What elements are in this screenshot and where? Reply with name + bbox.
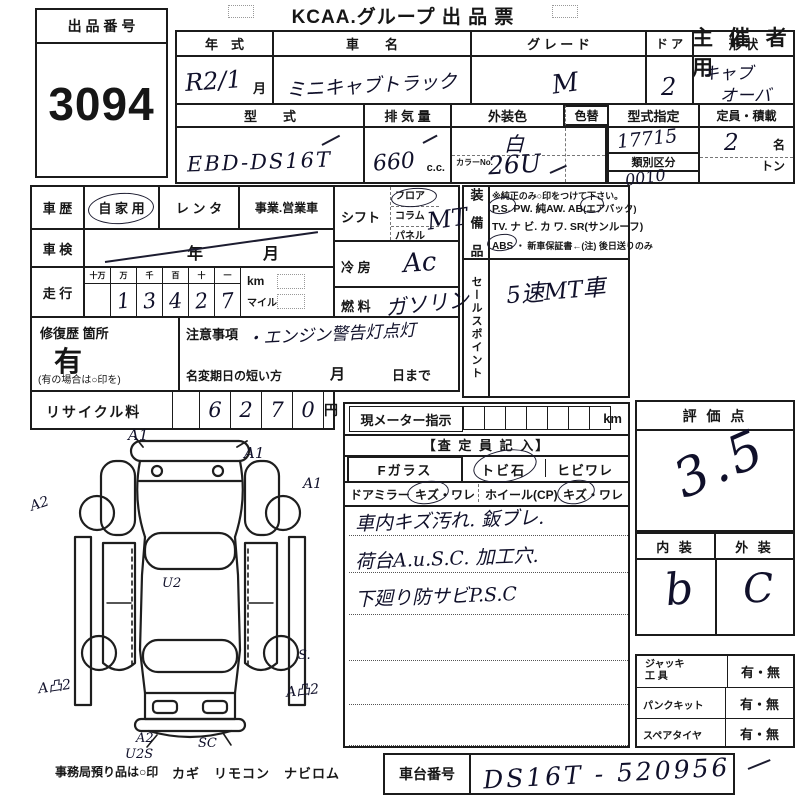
door-value: 2 [661, 73, 676, 101]
annotation-u2s-bottom: U2S [125, 747, 153, 762]
type-designation-header: 型式指定 [607, 103, 700, 128]
wheel-damage-label: キズ・ワレ [563, 486, 623, 503]
stone-chip-label: トビ石 [481, 460, 526, 479]
model-header: 型 式 [175, 103, 365, 128]
capacity-cell: 2 名 トン [698, 126, 795, 184]
equipment-label: 装 備 品 [464, 187, 490, 258]
auction-sheet: KCAA.グループ 出 品 票 主 催 者 用 出 品 番 号 3094 年 式… [0, 0, 800, 800]
mirror-wheel-row: ドアミラー キズ・ワレ ホイール(CP) キズ・ワレ [345, 481, 628, 507]
inspection-month-unit: 月 [263, 240, 279, 264]
equipment-aw: 純AW. [536, 203, 566, 215]
color-change-header: 色替 [565, 105, 607, 126]
digit-value: 3 [135, 283, 163, 318]
displacement-cell: 660 c.c. [363, 126, 452, 184]
annotation-a1-front-right: A1 [244, 444, 264, 462]
assessor-note-2: 荷台A.u.S.C. 加工穴. [355, 541, 539, 574]
digit-header: 千 [137, 268, 162, 284]
recycle-fee-box: リサイクル料 6 2 7 0 円 [30, 390, 335, 430]
shift-option-floor: フロア [391, 187, 439, 207]
name-header: 車 名 [272, 30, 472, 57]
equipment-pw: PW. [513, 203, 532, 215]
color-change-divider [565, 128, 566, 182]
class-value: 0010 [624, 165, 667, 189]
history-option-rental: レ ン タ [158, 185, 240, 230]
spare-tire-value: 有・無 [726, 719, 793, 748]
caution-label: 注意事項 [186, 324, 238, 343]
mileage-label: 走 行 [30, 266, 85, 318]
interior-exterior-box: 内 装 外 装 b C [635, 532, 795, 636]
model-cell: EBD-DS16T [175, 126, 365, 184]
exterior-label: 外 装 [716, 534, 793, 558]
recycle-unit: 円 [324, 392, 338, 428]
digit-header: 十万 [85, 268, 110, 284]
exhibit-number-box: 出 品 番 号 3094 [35, 8, 168, 178]
front-glass-label: Fガラス [347, 456, 463, 483]
digit-header: 万 [111, 268, 136, 284]
exhibit-number-label: 出 品 番 号 [37, 10, 166, 44]
recycle-digit: 6 [200, 392, 231, 428]
registration-mark-right [552, 5, 578, 18]
name-change-label: 名変期日の短い方 [186, 367, 282, 384]
sales-point-box: セールスポイント 5速MT車 [462, 258, 630, 398]
capacity-header: 定員・積載 [698, 103, 795, 128]
glass-row: Fガラス トビ石 ヒビワレ [345, 455, 628, 483]
office-custody-note: 事務局預り品は○印 [55, 763, 158, 780]
jack-label-line2: 工 具 [645, 671, 727, 683]
pen-check-model [322, 135, 341, 146]
recycle-digit: 0 [293, 392, 324, 428]
score-box: 評 価 点 3.5 [635, 400, 795, 532]
shape-cell: キャブ オーバ [692, 55, 795, 105]
vehicle-diagram [45, 425, 340, 760]
history-option-private: 自 家 用 [83, 185, 160, 230]
equipment-sr: SR(サンルーフ) [570, 221, 643, 233]
puncture-kit-value: 有・無 [726, 688, 793, 718]
capacity-value: 2 [724, 130, 739, 156]
annotation-u2-center: U2 [162, 576, 181, 591]
equipment-tv: TV. [492, 221, 507, 233]
annotation-sc-bottom: SC [198, 736, 217, 751]
equipment-line1: P.S. PW. 純AW. AB(エアバック) [492, 201, 637, 216]
shift-label: シフト [341, 207, 380, 226]
repair-note: (有の場合は○印を) [38, 371, 121, 386]
caution-box: 注意事項 ・エンジン警告灯点灯 名変期日の短い方 月 日まで [178, 316, 460, 392]
annotation-s-rear-right: S. [298, 648, 311, 663]
sales-point-label: セールスポイント [464, 260, 490, 396]
assessor-header: 【査 定 員 記 入】 [345, 434, 628, 457]
type-designation-cell: 17715 類別区分 0010 [607, 126, 700, 184]
interior-label: 内 装 [637, 534, 716, 558]
inspection-label: 車 検 [30, 228, 85, 268]
digit-value: 4 [161, 283, 189, 318]
mileage-grid: 十万 万 1 千 3 百 4 十 2 一 7 [85, 268, 241, 316]
assessor-box: 現メーター指示 km 【査 定 員 記 入】 Fガラス トビ石 ヒビワレ ドアミ… [343, 402, 630, 748]
puncture-kit-label: パンクキット [637, 688, 726, 718]
recycle-digit: 7 [262, 392, 293, 428]
name-change-until: 日まで [392, 365, 431, 384]
type-designation-value: 17715 [616, 125, 678, 153]
chassis-label: 車台番号 [385, 755, 471, 793]
recycle-label: リサイクル料 [46, 402, 141, 422]
model-value: EBD-DS16T [187, 147, 333, 176]
fuel-row: 燃 料 ガソリン [333, 286, 460, 318]
displacement-header: 排 気 量 [363, 103, 452, 128]
ext-color-header: 外装色 [450, 103, 565, 128]
chassis-number-box: 車台番号 DS16T - 520956 [383, 753, 735, 795]
jack-value: 有・無 [728, 656, 793, 687]
history-label: 車 歴 [30, 185, 85, 230]
name-cell: ミニキャブトラック [272, 55, 472, 105]
name-change-month: 月 [330, 363, 345, 384]
equipment-line3: ABS ・ 新車保証書←(注) 後日送りのみ [492, 239, 653, 252]
capacity-unit: 名 [773, 136, 785, 153]
assessor-note-3: 下廻り防サビP.S.C [355, 579, 518, 612]
grade-header: グ レ ー ド [470, 30, 647, 57]
color-no-value: 26U [487, 149, 541, 181]
inspection-year-unit: 年 [187, 240, 203, 264]
sales-point-value: 5速MT車 [505, 268, 607, 311]
year-header: 年 式 [175, 30, 274, 57]
door-header: ド ア [645, 30, 694, 57]
meter-row: 現メーター指示 km [345, 404, 628, 436]
ext-color-cell: 白 カラーNo. 26U [450, 126, 607, 184]
equipment-ps: P.S. [492, 203, 511, 215]
digit-value [85, 284, 110, 317]
spare-tire-label: スペアタイヤ [637, 719, 726, 748]
fuel-label: 燃 料 [341, 296, 371, 315]
grade-cell: M [470, 55, 647, 105]
meter-unit: km [603, 411, 622, 426]
shift-row: シフト フロア コラム パネル MT [333, 185, 460, 242]
recycle-digit-cells: 6 2 7 0 円 [172, 392, 338, 428]
exhibit-number-value: 3094 [37, 44, 166, 164]
displacement-value: 660 [372, 148, 416, 177]
equipment-navi: ナ ビ. [510, 221, 537, 233]
crack-label: ヒビワレ [557, 460, 613, 479]
exterior-value: C [741, 565, 775, 613]
door-cell: 2 [645, 55, 694, 105]
history-option-business: 事業.営業車 [238, 185, 335, 230]
ac-row: 冷 房 Ac [333, 240, 460, 288]
assessor-note-1: 車内キズ汚れ. 鈑ブレ. [355, 503, 545, 537]
annotation-a2-bottom: A2 [136, 731, 154, 746]
score-label: 評 価 点 [637, 402, 793, 431]
tools-box: ジャッキ 工 具 有・無 パンクキット 有・無 スペアタイヤ 有・無 [635, 654, 795, 748]
equipment-abs: ABS [492, 241, 513, 252]
custody-items: カギ リモコン ナビロム [172, 763, 340, 782]
digit-header: 十 [189, 268, 214, 284]
pen-check-displacement [423, 135, 438, 144]
ac-value: Ac [402, 247, 437, 279]
door-mirror-label: ドアミラー [350, 486, 410, 503]
annotation-a1-front-left: A1 [128, 426, 148, 444]
digit-value: 7 [213, 283, 241, 318]
annotation-a2-rear-right: A凸2 [285, 678, 320, 701]
mile-checkbox [277, 294, 305, 309]
shape-header: 形 状 [692, 30, 795, 57]
year-cell: R2/1 月 [175, 55, 274, 105]
meter-label: 現メーター指示 [349, 406, 463, 432]
digit-value: 1 [109, 283, 137, 318]
recycle-digit: 2 [231, 392, 262, 428]
equipment-box: 装 備 品 ※純正のみ○印をつけて下さい。 P.S. PW. 純AW. AB(エ… [462, 185, 630, 260]
annotation-a1-right: A1 [303, 476, 322, 492]
wheel-label: ホイール(CP) [485, 486, 558, 503]
digit-value: 2 [187, 283, 215, 318]
km-checkbox [277, 274, 305, 289]
mileage-cell: 十万 万 1 千 3 百 4 十 2 一 7 km [83, 266, 335, 318]
interior-value: b [662, 563, 695, 617]
chassis-value: DS16T - 520956 [482, 753, 731, 795]
equipment-line2: TV. ナ ビ. カ ワ. SR(サンルーフ) [492, 219, 643, 234]
equipment-kawa: カ ワ. [540, 221, 567, 233]
mirror-damage-label: キズ・ワレ [415, 486, 475, 503]
year-month-unit: 月 [253, 78, 266, 97]
equipment-warranty: ・ 新車保証書←(注) 後日送りのみ [516, 241, 653, 251]
registration-mark-left [228, 5, 254, 18]
page-title: KCAA.グループ 出 品 票 [258, 2, 548, 29]
grade-value: M [550, 67, 581, 100]
ac-label: 冷 房 [341, 257, 371, 276]
digit-header: 一 [215, 268, 240, 284]
km-unit-label: km [247, 274, 264, 288]
vehicle-name-value: ミニキャブトラック [285, 67, 457, 103]
equipment-ab-note: (エアバック) [583, 204, 636, 215]
pen-check-chassis [748, 759, 771, 770]
equipment-ab: AB [568, 203, 583, 215]
ton-unit: トン [761, 157, 785, 174]
meter-digit-boxes [463, 406, 611, 430]
displacement-unit: c.c. [427, 162, 445, 174]
digit-header: 百 [163, 268, 188, 284]
year-value: R2/1 [184, 65, 243, 97]
repair-history-box: 修復歴 箇所 有 (有の場合は○印を) [30, 316, 180, 392]
score-value: 3.5 [665, 417, 776, 510]
mile-unit-label: マイル [247, 294, 277, 309]
jack-label-line1: ジャッキ [645, 659, 727, 671]
fuel-value: ガソリン [384, 284, 471, 323]
